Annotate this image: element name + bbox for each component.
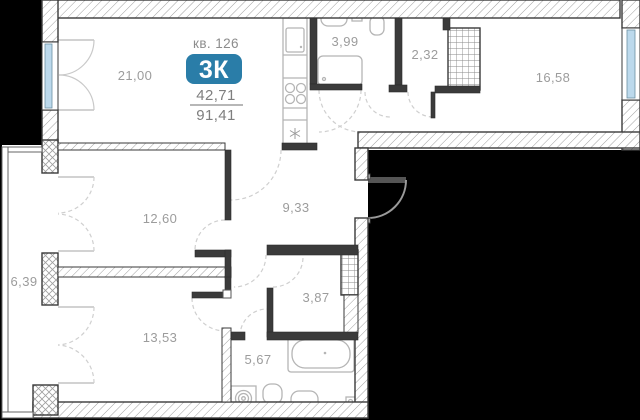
room-area-label-bedroom-middle: 12,60: [143, 211, 178, 226]
floor-silhouette: [2, 0, 640, 418]
total-area-value: 91,41: [196, 107, 236, 124]
wall-bottom: [33, 402, 368, 418]
window-right: [627, 30, 635, 98]
room-area-label-bedroom-right: 16,58: [536, 70, 571, 85]
floor-plan: 21,00 3,99 2,32 16,58 12,60 9,33 6,39 13…: [0, 0, 640, 420]
room-area-label-bathroom-upper: 3,99: [332, 34, 359, 49]
wall-bedroom-right-bottom: [358, 132, 640, 148]
kitchen-counter-icon: [283, 18, 307, 148]
room-area-label-hallway: 9,33: [283, 200, 310, 215]
wall-entry-upper: [355, 148, 368, 180]
wall-left-upper: [42, 0, 58, 42]
room-area-label-wardrobe: 2,32: [412, 47, 439, 62]
living-area-value: 42,71: [196, 87, 236, 104]
ventilation-shaft-middle: [341, 250, 358, 295]
wall-top: [42, 0, 620, 18]
room-area-label-inner-hall: 3,87: [303, 290, 330, 305]
apartment-number: кв. 126: [193, 36, 239, 51]
room-area-label-balcony: 6,39: [11, 274, 38, 289]
type-badge-label: 3К: [199, 56, 229, 84]
room-area-label-living: 21,00: [118, 68, 153, 83]
floor-plan-svg: 21,00 3,99 2,32 16,58 12,60 9,33 6,39 13…: [0, 0, 640, 420]
ventilation-shaft-top: [448, 28, 480, 90]
room-area-label-bathroom-lower: 5,67: [245, 352, 272, 367]
room-area-label-bedroom-lower: 13,53: [143, 330, 178, 345]
window-left: [45, 44, 52, 108]
